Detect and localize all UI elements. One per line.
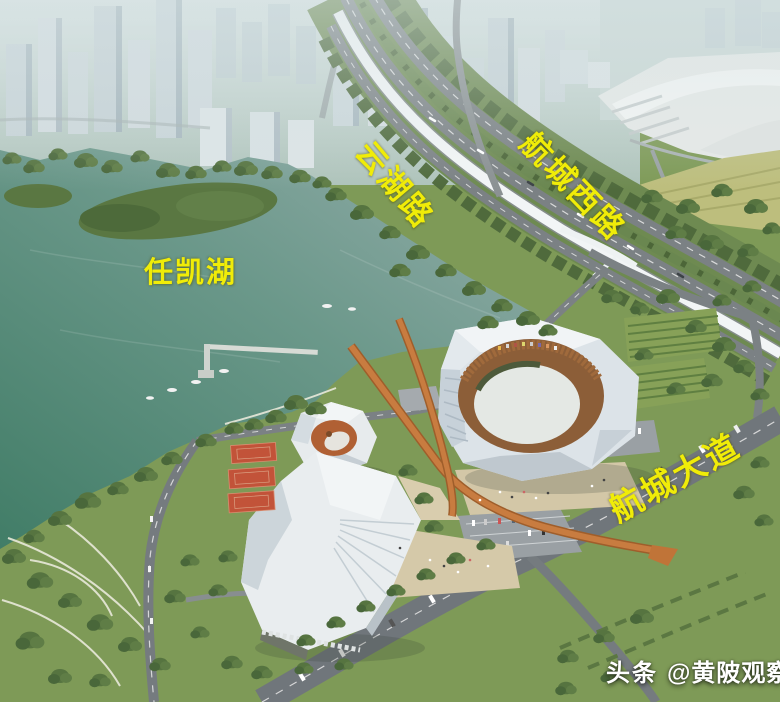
rendering-canvas [0,0,780,702]
aerial-rendering: 云湖路 航城西路 任凯湖 航城大道 头条@黄陂观察 [0,0,780,702]
watermark-handle: @黄陂观察 [667,660,780,687]
watermark-brand: 头条 [606,660,658,687]
watermark: 头条@黄陂观察 [606,653,780,688]
label-renkai-lake: 任凯湖 [144,259,237,288]
tennis-courts [225,442,281,512]
